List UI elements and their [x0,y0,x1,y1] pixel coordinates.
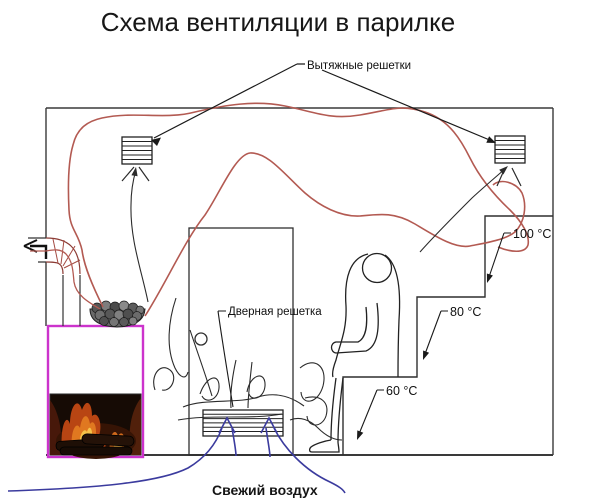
door-handle [195,333,207,345]
bench-steps [343,216,553,455]
chimney-elbow-outer [46,238,80,274]
flow-to-right-grille [420,168,506,252]
bather-leg [331,378,343,442]
chimney-exhaust-arrow-icon [24,240,46,259]
door [189,228,293,455]
firebox-image [50,394,141,459]
hot-air-flow-paths [30,103,528,316]
temp-label-80: 80 °C [423,305,481,360]
chimney-duct [63,275,80,326]
temp-label-100: 100 °C [487,227,551,283]
bather-foot [310,440,339,452]
flow-arrowheads [122,166,521,186]
bather-arm [332,303,379,353]
door-grille-label: Дверная решетка [228,306,322,318]
stove [48,326,143,459]
hot-air-chimney-flow [30,250,100,309]
svg-text:80 °C: 80 °C [450,305,481,319]
diagram-canvas: Вытяжные решетки Дверная решетка 100 °C … [0,0,600,503]
fresh-air-label: Свежий воздух [212,482,318,498]
ventilation-diagram: Вытяжные решетки Дверная решетка 100 °C … [0,0,600,503]
bather-head [363,254,392,283]
exhaust-grille-right [495,136,525,163]
temp-label-60: 60 °C [357,384,417,440]
label-exhaust-grilles-group: Вытяжные решетки [151,60,496,146]
exhaust-grille-left [122,137,152,164]
stove-stones [90,301,145,327]
exhaust-grilles-label: Вытяжные решетки [307,60,411,72]
door-frame [189,228,293,455]
hot-air-over-door-loop [145,153,525,316]
svg-text:60 °C: 60 °C [386,384,417,398]
flow-to-left-grille [131,170,148,302]
label-door-grille-group: Дверная решетка [218,306,322,407]
svg-text:100 °C: 100 °C [513,227,551,241]
chimney-elbow-inner [46,262,63,274]
air-turbulence-lines [131,168,506,440]
page-title: Схема вентиляции в парилке [101,7,456,37]
hot-air-ceiling-loop [68,103,528,307]
